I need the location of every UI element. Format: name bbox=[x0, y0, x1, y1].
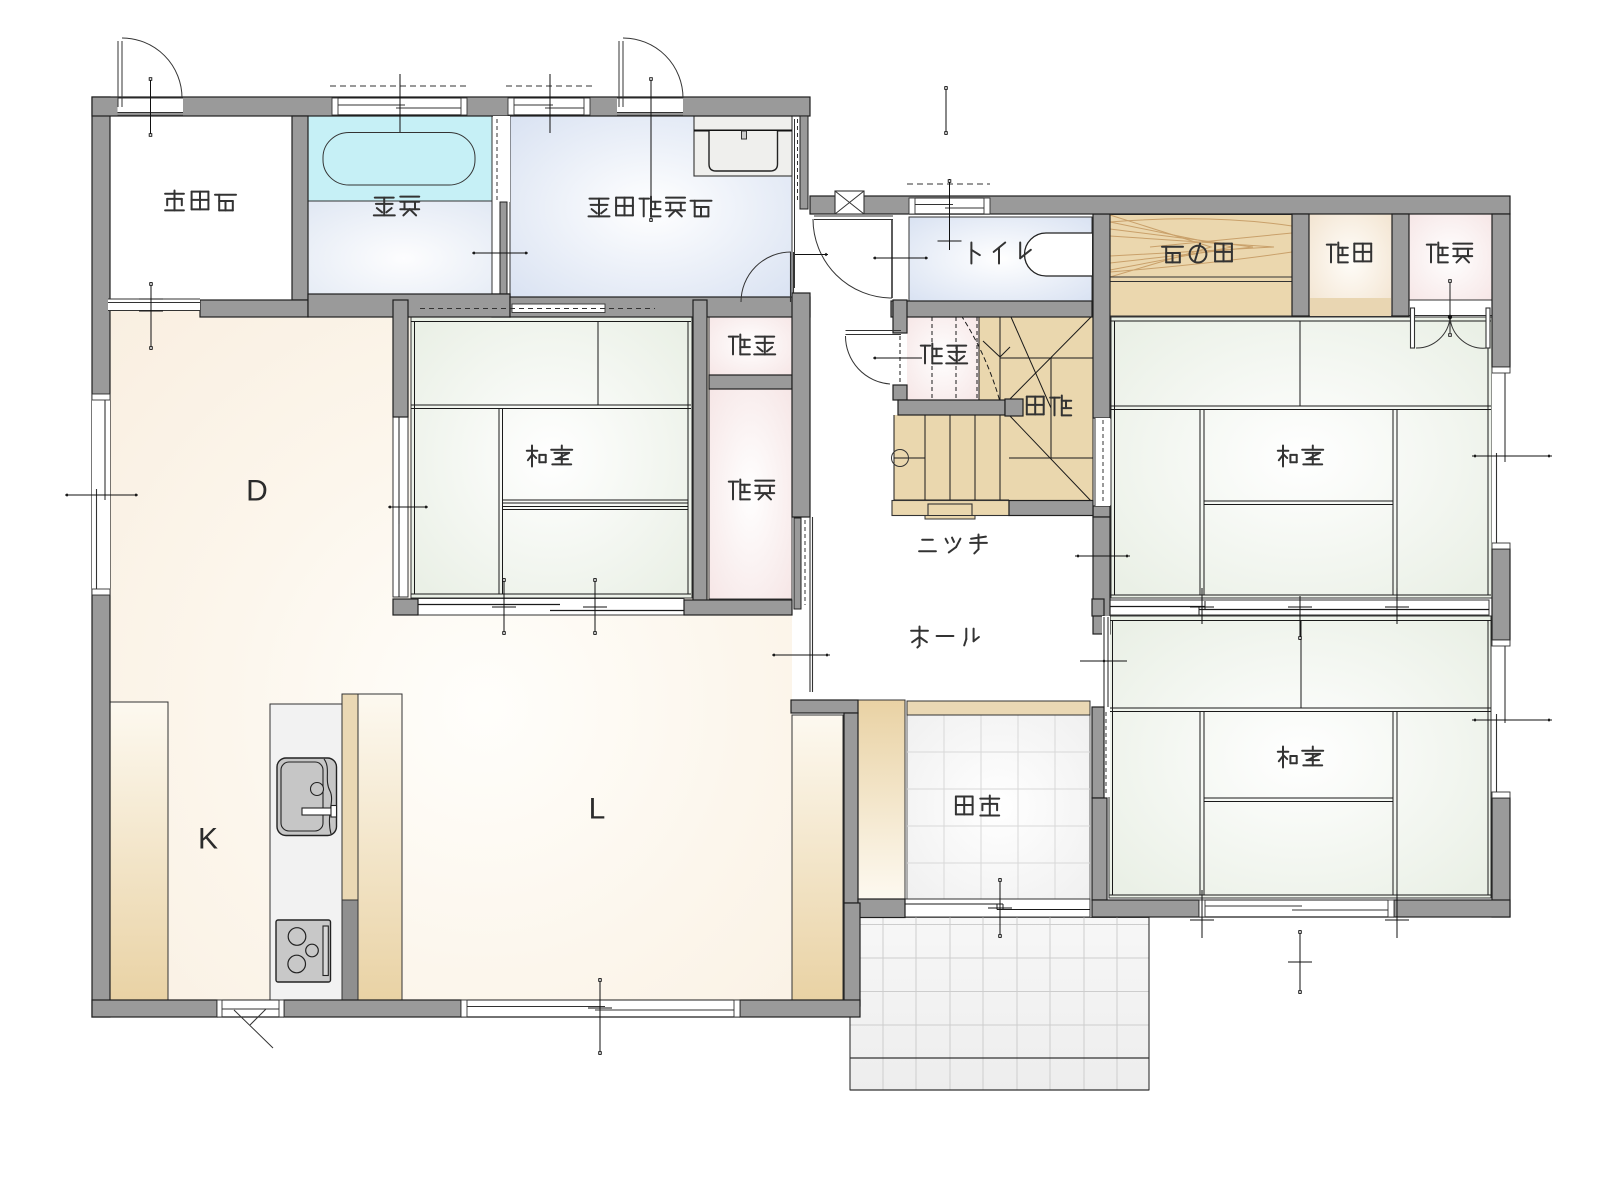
svg-text:K: K bbox=[198, 823, 218, 856]
svg-text:D: D bbox=[246, 475, 268, 508]
svg-text:L: L bbox=[589, 793, 606, 826]
